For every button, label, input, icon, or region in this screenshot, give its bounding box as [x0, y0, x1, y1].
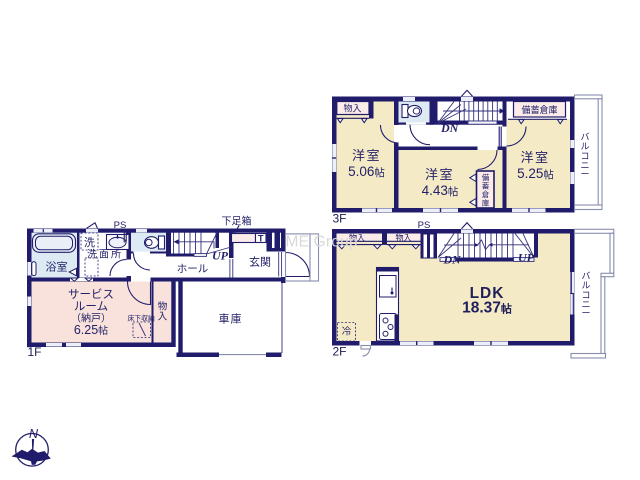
svg-text:洋室: 洋室 [425, 167, 454, 182]
svg-text:ルーム: ルーム [74, 300, 108, 313]
svg-text:浴室: 浴室 [46, 261, 68, 274]
svg-text:3F: 3F [333, 212, 347, 226]
svg-text:下足箱: 下足箱 [222, 215, 252, 228]
svg-text:入: 入 [158, 312, 168, 323]
svg-text:バ: バ [581, 132, 590, 142]
svg-text:物入: 物入 [396, 232, 412, 242]
svg-text:備: 備 [482, 172, 490, 182]
svg-text:ー: ー [582, 308, 591, 318]
svg-text:5.25帖: 5.25帖 [517, 166, 554, 181]
svg-text:洗面所: 洗面所 [87, 248, 123, 261]
svg-text:バ: バ [582, 271, 591, 281]
svg-text:ル: ル [582, 281, 591, 291]
svg-text:備蓄倉庫: 備蓄倉庫 [521, 104, 557, 115]
svg-text:2F: 2F [333, 345, 347, 359]
svg-text:冷: 冷 [342, 326, 352, 338]
svg-text:庫: 庫 [482, 198, 490, 208]
svg-text:N: N [29, 427, 39, 441]
svg-text:T: T [258, 233, 264, 243]
svg-text:6.25帖: 6.25帖 [74, 323, 108, 337]
svg-text:洋室: 洋室 [520, 150, 549, 165]
svg-text:車庫: 車庫 [219, 312, 243, 326]
svg-text:PS: PS [114, 220, 127, 231]
svg-text:洗: 洗 [84, 236, 95, 249]
svg-text:UP: UP [518, 251, 535, 265]
svg-text:洋室: 洋室 [352, 148, 381, 163]
svg-text:コ: コ [581, 151, 590, 161]
svg-text:コ: コ [582, 290, 591, 300]
svg-text:1F: 1F [28, 345, 42, 359]
svg-text:5.06帖: 5.06帖 [348, 164, 385, 179]
svg-text:ME Group: ME Group [286, 234, 358, 251]
svg-text:床下収納: 床下収納 [128, 314, 155, 323]
svg-text:ー: ー [581, 169, 590, 179]
svg-text:UP: UP [212, 249, 229, 263]
svg-text:ル: ル [581, 142, 590, 152]
svg-text:サービス: サービス [68, 288, 114, 301]
svg-text:玄関: 玄関 [249, 256, 271, 269]
svg-text:物入: 物入 [343, 103, 361, 114]
svg-text:PS: PS [418, 220, 431, 231]
svg-text:DN: DN [443, 253, 463, 267]
svg-text:DN: DN [440, 121, 460, 135]
svg-text:4.43帖: 4.43帖 [422, 183, 459, 198]
svg-text:ホール: ホール [177, 263, 209, 275]
svg-text:蓄: 蓄 [482, 181, 490, 191]
